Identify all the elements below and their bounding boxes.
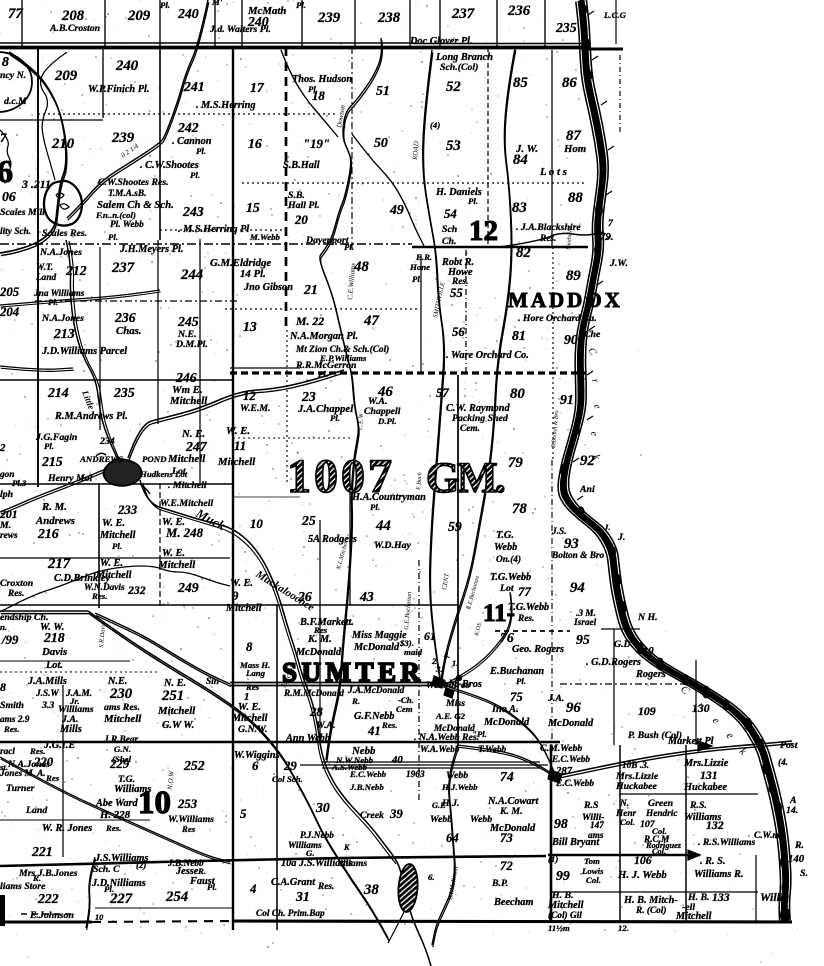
svg-text:99: 99 (556, 868, 570, 883)
svg-text:59: 59 (448, 519, 462, 534)
svg-text:Col.: Col. (586, 875, 601, 885)
svg-text:Mitchell: Mitchell (169, 395, 207, 407)
svg-text:E.C.Webb: E.C.Webb (349, 769, 387, 779)
svg-text:(4): (4) (430, 120, 440, 130)
svg-text:W. E.: W. E. (230, 578, 253, 589)
svg-text:W. E.: W. E. (162, 548, 185, 559)
svg-text:204: 204 (0, 305, 20, 319)
svg-text:Pl.: Pl. (344, 242, 354, 252)
svg-text:G.N.W.: G.N.W. (238, 724, 267, 735)
svg-text:239: 239 (111, 130, 135, 146)
svg-text:K. M.: K. M. (307, 634, 332, 645)
svg-text:J.A.Chappel: J.A.Chappel (297, 403, 353, 415)
svg-text:H. 228: H. 228 (99, 809, 131, 821)
svg-text:Little: Little (80, 388, 97, 411)
svg-text:W.A.Webb: W.A.Webb (420, 745, 460, 755)
svg-text:10B .3.: 10B .3. (622, 761, 649, 771)
svg-text:J.: J. (617, 532, 625, 543)
svg-text:247: 247 (185, 439, 208, 454)
svg-text:W.E.M.: W.E.M. (240, 403, 271, 414)
svg-text:90: 90 (564, 332, 578, 347)
svg-text:215: 215 (41, 454, 63, 469)
svg-text:201: 201 (0, 507, 18, 521)
svg-text:Tom: Tom (584, 856, 600, 866)
svg-text:Doc Glover Pl.: Doc Glover Pl. (409, 36, 473, 47)
svg-text:E.Buch: E.Buch (416, 472, 424, 491)
svg-text:Res.: Res. (517, 614, 534, 624)
svg-text:Pl.: Pl. (48, 297, 58, 307)
svg-text:238: 238 (377, 10, 401, 26)
svg-text:Col Sch.: Col Sch. (272, 774, 303, 784)
svg-text:Mitchell: Mitchell (103, 713, 141, 725)
svg-text:Henry Mol: Henry Mol (47, 473, 93, 484)
svg-text:244: 244 (180, 267, 203, 283)
svg-text:Green: Green (648, 798, 673, 809)
svg-text:234: 234 (99, 436, 115, 447)
svg-text:Willia: Willia (760, 890, 789, 904)
svg-text:C.W.ms: C.W.ms (754, 831, 784, 841)
svg-text:M. 22: M. 22 (295, 314, 324, 328)
svg-text:Packing Shed: Packing Shed (452, 413, 509, 424)
svg-text:232: 232 (127, 583, 146, 597)
svg-text:209: 209 (54, 68, 78, 84)
svg-text:R. M.: R. M. (41, 501, 67, 513)
svg-text:Webb: Webb (430, 814, 452, 825)
svg-text:J.W.: J.W. (609, 258, 628, 269)
svg-text:222: 222 (37, 891, 59, 906)
svg-text:Williams R.: Williams R. (694, 869, 743, 880)
svg-text:12: 12 (469, 215, 498, 247)
svg-text:88: 88 (568, 190, 583, 206)
svg-text:233: 233 (117, 503, 138, 517)
svg-text:Pl.: Pl. (207, 882, 217, 892)
svg-text:209: 209 (127, 8, 151, 24)
svg-text:25: 25 (301, 513, 316, 528)
svg-text:J.A.McDonald: J.A.McDonald (347, 686, 405, 696)
svg-text:Sch: Sch (442, 224, 457, 235)
svg-text:Pl.: Pl. (516, 676, 526, 686)
svg-text:254: 254 (165, 889, 188, 905)
svg-text:Mitchell: Mitchell (675, 911, 712, 922)
svg-text:W. E.: W. E. (100, 558, 123, 569)
svg-text:Lang: Lang (245, 668, 266, 678)
svg-text:e: e (710, 715, 722, 727)
svg-text:Hom: Hom (563, 143, 586, 155)
svg-text:79: 79 (508, 455, 523, 471)
svg-text:218: 218 (43, 630, 65, 645)
svg-text:rews: rews (0, 531, 18, 541)
svg-text:W.A.: W.A. (316, 720, 335, 731)
svg-text:243: 243 (182, 204, 204, 219)
svg-text:Hendric: Hendric (645, 809, 678, 819)
svg-text:G.: G. (306, 848, 315, 858)
svg-text:. N.A.Webb Res.: . N.A.Webb Res. (414, 732, 479, 743)
svg-text:10: 10 (250, 517, 263, 531)
svg-text:Webb: Webb (470, 814, 492, 825)
svg-text:236: 236 (114, 310, 136, 325)
svg-text:Res.: Res. (317, 882, 334, 892)
svg-text:R.: R. (351, 696, 360, 706)
svg-text:7: 7 (608, 218, 614, 229)
svg-text:94: 94 (570, 580, 585, 596)
svg-text:205: 205 (0, 285, 20, 299)
svg-text:61: 61 (424, 629, 436, 643)
svg-text:Res: Res (45, 773, 60, 783)
svg-text:J.A.: J.A. (547, 693, 564, 704)
svg-text:1.: 1. (452, 659, 458, 668)
svg-text:28: 28 (309, 705, 323, 719)
svg-text:Mills: Mills (59, 724, 82, 735)
svg-text:E.C.Webb: E.C.Webb (551, 755, 590, 765)
svg-text:C: C (585, 346, 598, 358)
svg-text:lph: lph (0, 489, 13, 500)
svg-text:J.S.W: J.S.W (35, 689, 59, 699)
svg-text:Res.: Res. (381, 720, 397, 730)
svg-text:S.B.Hall: S.B.Hall (283, 160, 320, 171)
svg-text:C.A.Grant: C.A.Grant (271, 877, 316, 888)
svg-text:Israel: Israel (573, 618, 597, 628)
svg-text:4: 4 (249, 882, 257, 896)
svg-text:B.Bolton & Bro: B.Bolton & Bro (551, 410, 560, 448)
svg-text:76: 76 (500, 630, 514, 645)
svg-text:J.B.Nebb: J.B.Nebb (349, 782, 384, 792)
svg-text:83: 83 (512, 200, 527, 216)
svg-text:E.Johnson: E.Johnson (29, 910, 74, 921)
svg-text:R.M.McDonald: R.M.McDonald (283, 689, 344, 699)
svg-text:Mitchell: Mitchell (99, 530, 136, 541)
svg-text:245: 245 (177, 314, 199, 329)
svg-text:B.P.: B.P. (491, 878, 508, 889)
svg-text:Pl.: Pl. (108, 232, 118, 242)
svg-text:"19": "19" (303, 137, 330, 151)
svg-text:POND: POND (142, 454, 167, 464)
svg-text:W.D.Hay: W.D.Hay (374, 540, 411, 551)
svg-text:Miss Maggie: Miss Maggie (351, 630, 407, 641)
svg-text:6: 6 (0, 153, 13, 189)
svg-text:109: 109 (638, 704, 656, 718)
svg-text:Pl.: Pl. (196, 146, 206, 156)
svg-text:J.H.Meyers Pl.: J.H.Meyers Pl. (119, 244, 184, 255)
svg-text:14 Pl.: 14 Pl. (240, 268, 266, 280)
svg-text:e: e (588, 431, 600, 438)
svg-text:Croxton: Croxton (0, 578, 33, 589)
svg-text:G.D: G.D (614, 639, 631, 650)
svg-text:11: 11 (234, 439, 246, 453)
svg-text:240: 240 (115, 58, 139, 74)
svg-text:e: e (724, 730, 736, 742)
svg-text:Ino A.: Ino A. (491, 704, 519, 715)
svg-text:54: 54 (444, 207, 457, 221)
svg-text:16: 16 (248, 136, 262, 151)
svg-text:249: 249 (177, 580, 199, 595)
svg-text:5: 5 (240, 807, 247, 821)
svg-text:M.Webb: M.Webb (249, 232, 280, 242)
svg-text:4.: 4. (443, 651, 450, 660)
svg-text:77: 77 (8, 6, 23, 22)
svg-text:Col.: Col. (652, 847, 666, 856)
svg-text:W.T.: W.T. (36, 263, 53, 273)
svg-text:41: 41 (367, 724, 381, 738)
svg-text:10: 10 (95, 913, 103, 922)
svg-text:D.M.Pl.: D.M.Pl. (175, 339, 208, 350)
svg-text:Davis: Davis (41, 646, 67, 658)
svg-text:k: k (737, 746, 750, 759)
svg-text:M.: M. (0, 520, 11, 531)
svg-text:(1): (1) (548, 854, 558, 864)
svg-text:P.J.Nebb: P.J.Nebb (300, 831, 334, 841)
svg-text:8: 8 (0, 680, 6, 694)
svg-text:MADDOX: MADDOX (508, 288, 623, 312)
svg-text:131: 131 (700, 768, 718, 782)
svg-text:SMITHVILLE: SMITHVILLE (432, 281, 446, 318)
svg-text:W. E.: W. E. (226, 425, 250, 437)
svg-text:maid: maid (404, 647, 423, 657)
svg-text:ams Res.: ams Res. (104, 702, 140, 713)
svg-text:A.E. G2: A.E. G2 (435, 711, 466, 721)
svg-text:47: 47 (363, 313, 379, 329)
svg-text:51: 51 (376, 83, 390, 98)
svg-text:illiams: illiams (340, 858, 367, 869)
svg-text:Ann Webb: Ann Webb (285, 733, 330, 744)
svg-text:95: 95 (576, 632, 590, 647)
svg-text:R.S.: R.S. (689, 800, 707, 811)
svg-text:T.G.Webb: T.G.Webb (490, 572, 531, 583)
svg-text:74: 74 (500, 769, 514, 784)
svg-text:Res.: Res. (105, 823, 121, 833)
svg-text:241: 241 (183, 79, 205, 94)
svg-text:Mitchell: Mitchell (225, 603, 262, 614)
svg-text:. M.S.Herring: . M.S.Herring (196, 100, 256, 111)
svg-text:R.S: R.S (583, 800, 599, 811)
svg-text:J.d. Walters Pl.: J.d. Walters Pl. (209, 24, 271, 35)
svg-text:237: 237 (451, 6, 475, 22)
svg-text:K: K (343, 843, 350, 852)
svg-text:78: 78 (512, 501, 527, 517)
svg-text:1963: 1963 (406, 770, 425, 780)
svg-text:235: 235 (555, 20, 577, 35)
svg-text:E.R.: E.R. (415, 252, 432, 262)
svg-text:23: 23 (301, 389, 316, 404)
svg-text:e: e (591, 403, 603, 411)
svg-text:J.G.Fagin: J.G.Fagin (35, 432, 77, 443)
svg-text:Sch.(Col): Sch.(Col) (440, 62, 478, 73)
svg-text:H.J.Webb: H.J.Webb (441, 782, 478, 792)
svg-text:52: 52 (446, 79, 461, 95)
svg-text:. Ware Orchard Co.: . Ware Orchard Co. (446, 350, 529, 361)
svg-text:. R.S.Williams: . R.S.Williams (698, 837, 756, 848)
svg-text:Jna Williams: Jna Williams (33, 289, 85, 299)
svg-text:Pl. Webb: Pl. Webb (110, 220, 144, 230)
svg-text:Pl.: Pl. (318, 369, 328, 379)
svg-text:15: 15 (246, 200, 260, 215)
svg-text:Webb: Webb (494, 542, 517, 553)
svg-text:50: 50 (374, 135, 388, 150)
svg-text:227: 227 (109, 891, 133, 907)
svg-text:J.: J. (603, 522, 611, 532)
svg-text:30: 30 (315, 800, 330, 815)
svg-text:H. B. Mitch-: H. B. Mitch- (623, 895, 678, 906)
svg-text:10: 10 (138, 785, 171, 821)
svg-text:n.: n. (0, 622, 7, 632)
svg-text:D.Pl.: D.Pl. (377, 416, 397, 426)
svg-text:236: 236 (507, 3, 531, 19)
svg-text:229: 229 (109, 757, 130, 771)
svg-text:McDonald: McDonald (483, 717, 530, 728)
svg-text:CENT: CENT (441, 573, 451, 591)
svg-text:43: 43 (359, 589, 374, 604)
svg-text:89: 89 (566, 268, 581, 284)
svg-text:14.: 14. (786, 805, 798, 816)
svg-text:Cem: Cem (396, 704, 413, 714)
svg-text:Ch.: Ch. (442, 236, 456, 247)
svg-text:J.S.: J.S. (551, 527, 566, 537)
svg-text:Davenport: Davenport (305, 235, 349, 246)
svg-text:44: 44 (375, 518, 391, 534)
svg-text:(4.: (4. (778, 757, 788, 768)
svg-text:S.R.Davis: S.R.Davis (98, 622, 107, 649)
svg-text:B.I.McKinnic: B.I.McKinnic (447, 865, 460, 901)
svg-text:H. J. Webb: H. J. Webb (617, 869, 667, 881)
svg-text:W. E.: W. E. (102, 518, 125, 529)
svg-text:Mitchell: Mitchell (217, 456, 255, 468)
svg-text:Res.: Res. (539, 234, 556, 244)
svg-text:Huckabee: Huckabee (683, 782, 727, 793)
svg-text:L o t s: L o t s (539, 166, 567, 178)
svg-text:Col.: Col. (620, 817, 635, 827)
svg-text:246: 246 (175, 370, 197, 385)
svg-text:. Hore Orchard Ca.: . Hore Orchard Ca. (518, 313, 597, 324)
svg-text:S.: S. (800, 868, 808, 879)
svg-text:91: 91 (560, 392, 574, 407)
svg-text:Land: Land (35, 273, 56, 283)
svg-text:Smith: Smith (0, 700, 24, 711)
svg-text:12: 12 (243, 389, 256, 403)
svg-text:06: 06 (2, 189, 16, 204)
svg-text:210: 210 (51, 136, 75, 152)
svg-text:217: 217 (47, 556, 71, 572)
svg-text:235: 235 (113, 385, 135, 400)
svg-text:93: 93 (564, 536, 579, 552)
svg-text:Abe Ward: Abe Ward (95, 798, 139, 809)
svg-text:6: 6 (252, 759, 259, 773)
svg-text:Pl.: Pl. (370, 502, 380, 512)
svg-text:Lot: Lot (499, 583, 514, 594)
svg-text:Mitchell: Mitchell (231, 713, 268, 724)
svg-text:212: 212 (65, 263, 87, 278)
svg-text:Turner: Turner (6, 783, 35, 794)
svg-text:G.E: G.E (432, 801, 446, 810)
svg-text:Mitchell: Mitchell (167, 453, 205, 465)
svg-text:T.M.A.sB.: T.M.A.sB. (108, 189, 146, 199)
svg-text:Res: Res (181, 824, 196, 834)
svg-text:(2): (2) (136, 860, 146, 870)
svg-text:2: 2 (0, 442, 6, 454)
svg-text:. G.D.Rogers: . G.D.Rogers (586, 657, 641, 668)
svg-text:3.: 3. (435, 664, 443, 674)
svg-text:N H.: N H. (637, 612, 658, 623)
svg-text:31: 31 (295, 889, 310, 904)
svg-text:N.A.Jones: N.A.Jones (39, 247, 82, 258)
svg-text:Pl.: Pl. (330, 413, 340, 423)
svg-text:96: 96 (566, 700, 581, 716)
svg-text:Webb Bros: Webb Bros (426, 680, 470, 691)
svg-text:lity Sch.: lity Sch. (0, 227, 31, 237)
svg-text:86: 86 (562, 75, 577, 91)
svg-text:Pl.: Pl. (468, 196, 478, 206)
svg-text:Che: Che (584, 329, 601, 340)
svg-text:77: 77 (518, 585, 531, 599)
svg-text:64: 64 (446, 831, 459, 845)
svg-text:R.: R. (794, 840, 804, 851)
svg-text:Pl.3: Pl.3 (12, 478, 27, 488)
svg-text:98: 98 (554, 816, 568, 831)
svg-text:87: 87 (566, 128, 581, 144)
svg-text:C.W.Shootes Res.: C.W.Shootes Res. (98, 177, 169, 188)
svg-text:M. 248: M. 248 (165, 526, 204, 540)
svg-text:213: 213 (53, 326, 75, 341)
svg-text:82: 82 (516, 245, 531, 261)
svg-text:106: 106 (634, 853, 652, 867)
svg-text:Mitchell: Mitchell (547, 900, 584, 911)
svg-text:J.D.Nilliams: J.D.Nilliams (91, 878, 146, 889)
svg-text:73: 73 (500, 831, 513, 845)
svg-text:1: 1 (244, 691, 249, 703)
svg-text:T.G.: T.G. (496, 530, 514, 541)
svg-text:Thos. Hudson: Thos. Hudson (292, 74, 352, 85)
svg-text:72: 72 (500, 859, 513, 873)
svg-text:C: C (678, 683, 692, 697)
svg-text:56: 56 (452, 325, 465, 339)
svg-text:Ani: Ani (579, 484, 595, 495)
svg-text:J.A.Mills: J.A.Mills (27, 676, 67, 687)
svg-text:Miss: Miss (445, 698, 465, 709)
svg-text:49: 49 (389, 202, 404, 217)
svg-text:140: 140 (788, 853, 805, 865)
svg-text:75: 75 (510, 690, 523, 704)
svg-text:237: 237 (111, 260, 135, 276)
svg-text:5A Rodgers: 5A Rodgers (308, 534, 357, 545)
svg-text:. R. S.: . R. S. (700, 856, 725, 867)
svg-text:Cem.: Cem. (460, 424, 480, 434)
svg-text:239: 239 (317, 10, 341, 26)
svg-text:Pl.: Pl. (296, 0, 306, 10)
svg-text:Bill Bryant: Bill Bryant (551, 837, 600, 848)
svg-text:Beecham: Beecham (493, 897, 533, 908)
svg-text:/99: /99 (1, 633, 19, 647)
svg-text:ANDREWS: ANDREWS (79, 454, 123, 464)
svg-text:40: 40 (391, 754, 403, 766)
svg-text:SUMTER: SUMTER (282, 657, 425, 687)
svg-text:38: 38 (363, 882, 379, 898)
svg-text:287: 287 (555, 765, 573, 777)
svg-text:7: 7 (0, 131, 7, 145)
svg-text:Mrs J.B.Jones: Mrs J.B.Jones (18, 868, 78, 879)
svg-text:11½m: 11½m (548, 923, 570, 933)
svg-text:Scales Mill: Scales Mill (0, 207, 45, 218)
svg-text:53: 53 (446, 138, 461, 154)
svg-text:132: 132 (706, 818, 724, 832)
svg-text:C.M.Webb: C.M.Webb (540, 743, 582, 754)
svg-text:K. M.: K. M. (499, 806, 523, 817)
svg-text:W. E.: W. E. (238, 702, 261, 713)
svg-text:85: 85 (513, 75, 528, 91)
svg-text:N.A.Jones: N.A.Jones (41, 313, 84, 324)
svg-text:20: 20 (294, 213, 308, 227)
svg-text:208: 208 (61, 8, 85, 24)
svg-text:. Mitchell: . Mitchell (168, 480, 207, 491)
svg-text:18: 18 (312, 89, 325, 103)
svg-text:221: 221 (31, 844, 53, 859)
